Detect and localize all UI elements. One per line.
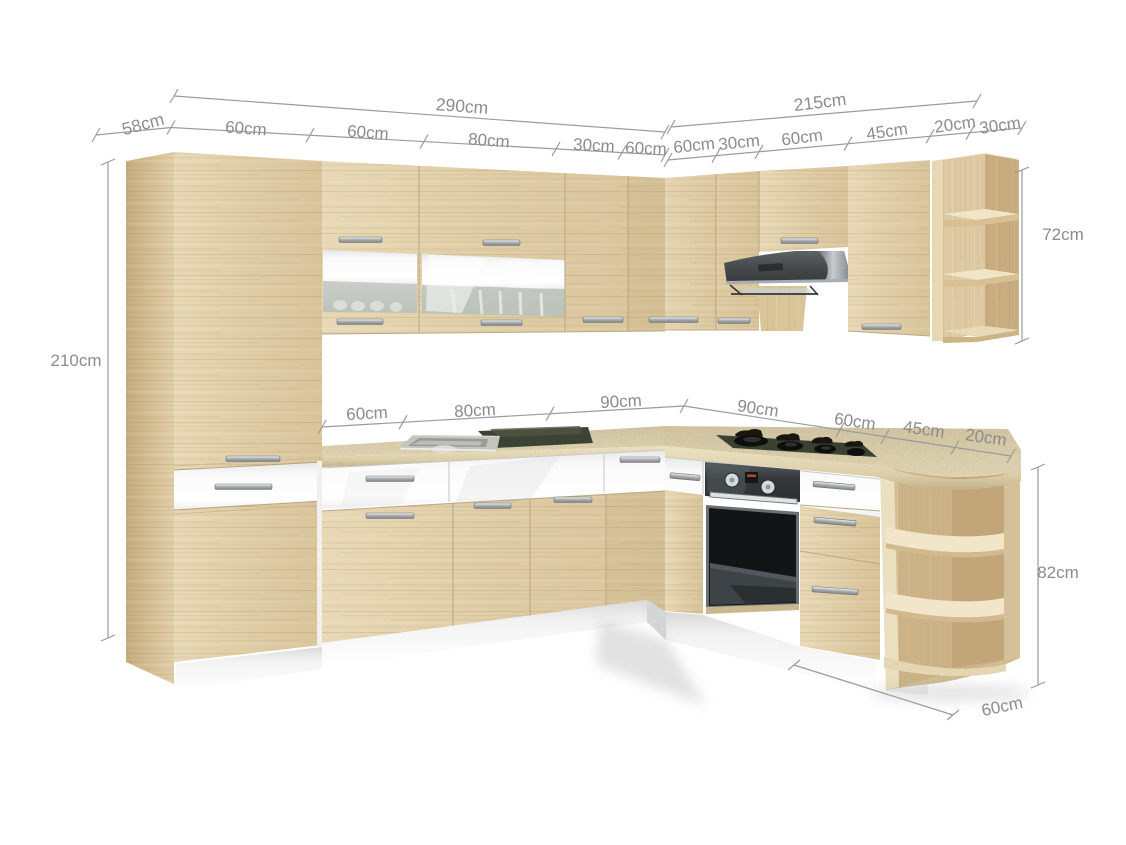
svg-text:30cm: 30cm: [717, 131, 760, 154]
svg-text:60cm: 60cm: [672, 134, 715, 157]
svg-text:60cm: 60cm: [347, 122, 390, 144]
svg-text:60cm: 60cm: [780, 126, 824, 150]
svg-text:215cm: 215cm: [793, 89, 848, 115]
svg-text:90cm: 90cm: [600, 391, 643, 412]
svg-text:80cm: 80cm: [454, 400, 497, 421]
svg-text:80cm: 80cm: [468, 130, 511, 152]
svg-text:90cm: 90cm: [736, 396, 780, 421]
svg-text:60cm: 60cm: [346, 403, 389, 424]
svg-text:60cm: 60cm: [625, 138, 667, 158]
svg-text:45cm: 45cm: [865, 119, 909, 144]
svg-text:82cm: 82cm: [1037, 563, 1079, 582]
svg-text:210cm: 210cm: [50, 351, 101, 370]
svg-text:290cm: 290cm: [435, 94, 489, 118]
svg-text:30cm: 30cm: [978, 113, 1022, 138]
svg-text:60cm: 60cm: [225, 118, 268, 140]
svg-text:58cm: 58cm: [120, 109, 167, 139]
svg-text:30cm: 30cm: [573, 135, 616, 156]
svg-text:72cm: 72cm: [1042, 225, 1084, 244]
